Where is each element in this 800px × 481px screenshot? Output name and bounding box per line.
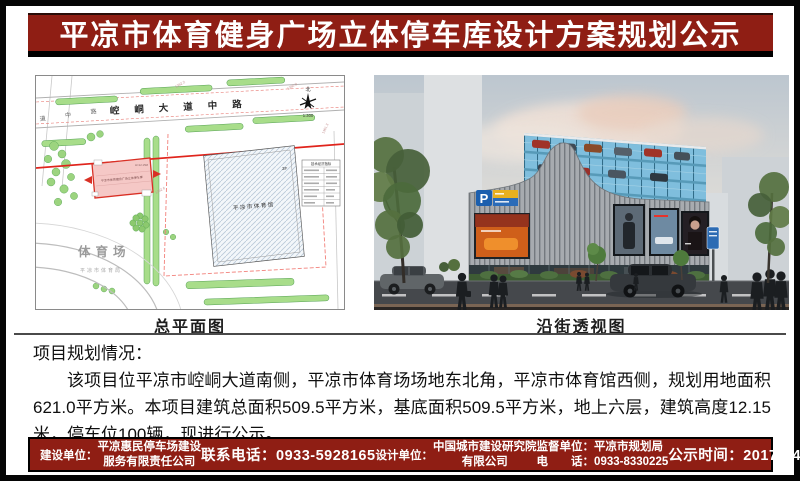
designer-name-line1: 中国城市建设研究院 [433,440,537,455]
designer-label: 设计单位： [376,447,434,463]
site-plan-drawing: 平凉市体育馆 3F 平凉市体育健身广场立体停车库 H=12.15M [35,75,345,310]
billboard-poster-2 [650,209,678,255]
supervisor-unit: 监督单位：平凉市规划局 电 话：0933-8330225 [537,440,669,470]
supervisor-line2: 电 话：0933-8330225 [537,455,669,470]
parking-garage-building: 平凉市体育健身广场立体停车库 H=12.15M [84,158,161,198]
poster-title: 平凉市体育健身广场立体停车库设计方案规划公示 [59,12,741,54]
parking-height-note: H=12.15M [135,163,149,167]
footer-banner: 建设单位： 平凉惠民停车场建设 服务有限责任公司 联系电话：0933-59281… [28,437,773,472]
parking-sign-letter: P [480,191,489,206]
gymnasium-building: 平凉市体育馆 3F [204,146,304,266]
stadium-sublabel: 平凉市体育局 [80,267,122,274]
svg-text:北: 北 [305,86,310,93]
project-info-paragraph: 该项目位平凉市崆峒大道南侧，平凉市体育场场地东北角，平凉市体育馆西侧，规划用地面… [33,367,771,448]
billboard-orange [475,214,529,258]
builder-unit: 建设单位： 平凉惠民停车场建设 服务有限责任公司 [40,440,201,470]
billboard-poster-1 [614,205,644,255]
gym-floors-label: 3F [282,166,288,171]
site-plan-figure: 平凉市体育馆 3F 平凉市体育健身广场立体停车库 H=12.15M [35,75,345,337]
street-perspective-figure: P [374,75,789,337]
project-info-section: 项目规划情况： 该项目位平凉市崆峒大道南侧，平凉市体育场场地东北角，平凉市体育馆… [33,341,771,448]
notice-poster: 平凉市体育健身广场立体停车库设计方案规划公示 [0,0,800,481]
publicity-period: 公示时间：2017年4月26日至5月5日 [668,444,800,465]
indicator-table-title: 技术经济指标 [311,161,332,166]
render-svg: P [374,75,789,310]
section-divider [14,333,786,335]
plan-scale: 1:300 [303,113,314,118]
builder-label: 建设单位： [40,447,98,463]
supervisor-line1: 监督单位：平凉市规划局 [537,440,669,455]
street-perspective-image: P [374,75,789,310]
parking-sign: P [476,190,518,206]
designer-name-line2: 有限公司 [462,455,508,470]
billboard-poster-3 [682,212,708,255]
project-info-heading: 项目规划情况： [33,341,771,367]
stadium-label: 体育场 [78,244,131,259]
indicator-table: 技术经济指标 [302,160,340,206]
designer-unit: 设计单位： 中国城市建设研究院 有限公司 [376,440,537,470]
header-banner: 平凉市体育健身广场立体停车库设计方案规划公示 [28,13,773,57]
builder-name-line2: 服务有限责任公司 [103,455,195,470]
contact-phone: 联系电话：0933-5928165 [201,444,376,465]
site-plan-svg: 平凉市体育馆 3F 平凉市体育健身广场立体停车库 H=12.15M [36,76,344,309]
builder-name-line1: 平凉惠民停车场建设 [98,440,202,455]
